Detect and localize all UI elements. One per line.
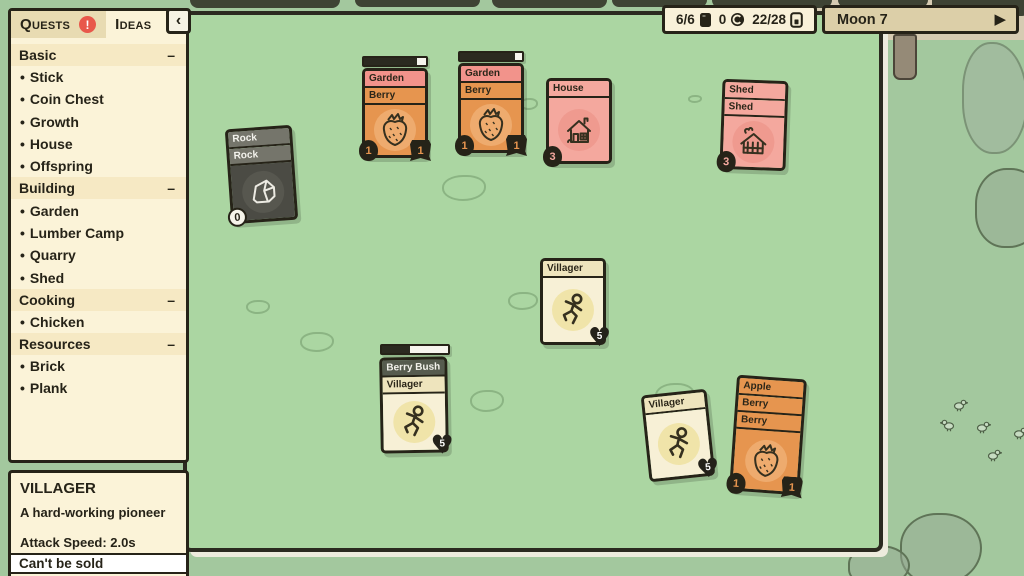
tree-canopy [355,0,480,7]
quest-section-cooking[interactable]: Cooking– [11,289,186,311]
info-stat-attack-speed: Attack Speed: 2.0s [20,535,177,550]
tab-ideas[interactable]: Ideas [106,11,161,38]
bullet-icon: • [20,225,25,241]
quest-item-offspring[interactable]: •Offspring [11,155,186,177]
bush-sketch [300,332,334,352]
count-badge: 1 [506,135,527,156]
collapse-section-icon: – [167,47,175,63]
count-badge: 1 [410,140,431,161]
quest-item-growth[interactable]: •Growth [11,111,186,133]
rock-icon [241,170,284,213]
strawberry-icon [375,110,415,150]
bullet-icon: • [20,114,25,130]
card-title: House [549,81,609,98]
villager-icon [657,422,701,466]
game-board[interactable]: Rock Rock 0 Garden Berry 1 1 Garden Berr… [183,11,883,552]
quest-tabs: Quests ! Ideas [11,11,186,38]
card-title: Shed [725,82,786,101]
bush-sketch [975,168,1024,248]
bush-sketch [508,292,538,310]
tree-trunk [893,34,917,80]
villager-icon [553,290,593,330]
health-badge: ♥5 [698,457,719,480]
bush-sketch [442,175,486,201]
card-title: Villager [543,261,603,278]
card-berrybush-villager-stack[interactable]: Berry Bush Villager ♥5 [379,356,449,453]
tree-canopy [190,0,340,8]
collapse-section-icon: – [167,292,175,308]
card-title: Berry [365,88,425,105]
info-footer: Can't be sold [11,553,186,574]
bush-sketch [246,300,270,314]
count-badge: 0 [227,207,247,227]
quest-item-quarry[interactable]: •Quarry [11,244,186,266]
count-badge: 1 [726,472,746,494]
info-description: A hard-working pioneer [20,505,177,520]
bird-icon [1012,426,1024,440]
card-garden-berry-stack-2[interactable]: Garden Berry 1 1 [458,63,524,153]
tab-quests[interactable]: Quests ! [11,11,106,38]
play-button[interactable]: ▶ [994,12,1006,27]
quest-panel: Quests ! Ideas ‹ Basic– •Stick •Coin Che… [8,8,189,463]
health-badge: ♥5 [433,434,452,455]
alert-badge: ! [79,16,96,33]
tab-ideas-label: Ideas [115,16,151,33]
strawberry-icon [471,105,511,145]
timer-bar [362,56,428,67]
resources-panel: 6/6 0 22/28 [662,5,817,34]
coin-icon [730,12,745,27]
bullet-icon: • [20,314,25,330]
quest-item-house[interactable]: •House [11,133,186,155]
count-badge: 1 [455,135,474,156]
quest-list: Basic– •Stick •Coin Chest •Growth •House… [11,44,186,400]
quest-item-plank[interactable]: •Plank [11,377,186,399]
collapse-section-icon: – [167,180,175,196]
card-shed-stack[interactable]: Shed Shed 3 [719,79,788,171]
chevron-left-icon: ‹ [176,12,181,30]
bullet-icon: • [20,380,25,396]
food-counter: 6/6 [676,12,712,28]
card-limit-icon [790,12,803,28]
game-screen: Rock Rock 0 Garden Berry 1 1 Garden Berr… [0,0,1024,576]
count-badge: 3 [543,146,562,167]
collapse-section-icon: – [167,336,175,352]
bullet-icon: • [20,136,25,152]
quest-section-basic[interactable]: Basic– [11,44,186,66]
collapse-panel-button[interactable]: ‹ [166,8,191,34]
bird-icon [940,418,956,432]
quest-item-coin-chest[interactable]: •Coin Chest [11,88,186,110]
coin-counter: 0 [719,12,746,27]
bush-sketch [900,513,982,576]
house-icon [559,110,599,150]
timer-bar [380,344,450,355]
bullet-icon: • [20,91,25,107]
quest-item-garden[interactable]: •Garden [11,199,186,221]
quest-item-shed[interactable]: •Shed [11,266,186,288]
health-badge: ♥5 [590,327,609,348]
bullet-icon: • [20,69,25,85]
quest-section-building[interactable]: Building– [11,177,186,199]
card-title: Shed [724,99,785,118]
card-house[interactable]: House 3 [546,78,612,164]
card-villager-1[interactable]: Villager ♥5 [540,258,606,345]
quest-item-lumber-camp[interactable]: •Lumber Camp [11,222,186,244]
bullet-icon: • [20,158,25,174]
card-title: Berry Bush [382,359,444,377]
card-rock-stack[interactable]: Rock Rock 0 [225,125,298,224]
card-villager-2[interactable]: Villager ♥5 [641,389,716,482]
timer-bar [458,51,524,62]
card-title: Garden [365,71,425,88]
bullet-icon: • [20,358,25,374]
bullet-icon: • [20,203,25,219]
pond-sketch [962,42,1024,154]
bush-sketch [688,95,702,103]
strawberry-icon [745,439,788,482]
card-title: Berry [461,83,521,100]
shed-icon [733,121,774,162]
bird-icon [975,420,991,434]
moon-label: Moon 7 [837,12,888,28]
card-garden-berry-stack-1[interactable]: Garden Berry 1 1 [362,68,428,158]
card-counter: 22/28 [752,12,803,28]
bullet-icon: • [20,247,25,263]
bird-icon [952,398,968,412]
moon-panel: Moon 7 ▶ [822,5,1019,34]
bush-sketch [470,390,504,412]
count-badge: 1 [781,476,803,498]
count-badge: 3 [716,151,736,173]
card-apple-berry-stack[interactable]: Apple Berry Berry 1 1 [729,375,807,496]
quest-item-chicken[interactable]: •Chicken [11,311,186,333]
tree-canopy [492,0,607,8]
bullet-icon: • [20,270,25,286]
card-title: Villager [383,376,445,394]
card-info-panel: VILLAGER A hard-working pioneer Attack S… [8,470,189,576]
villager-icon [394,402,435,443]
tab-quests-label: Quests [20,16,70,33]
quest-item-stick[interactable]: •Stick [11,66,186,88]
count-badge: 1 [359,140,378,161]
bird-icon [986,448,1002,462]
card-title: Garden [461,66,521,83]
info-title: VILLAGER [20,480,177,497]
food-card-icon [699,12,712,28]
quest-section-resources[interactable]: Resources– [11,333,186,355]
quest-item-brick[interactable]: •Brick [11,355,186,377]
